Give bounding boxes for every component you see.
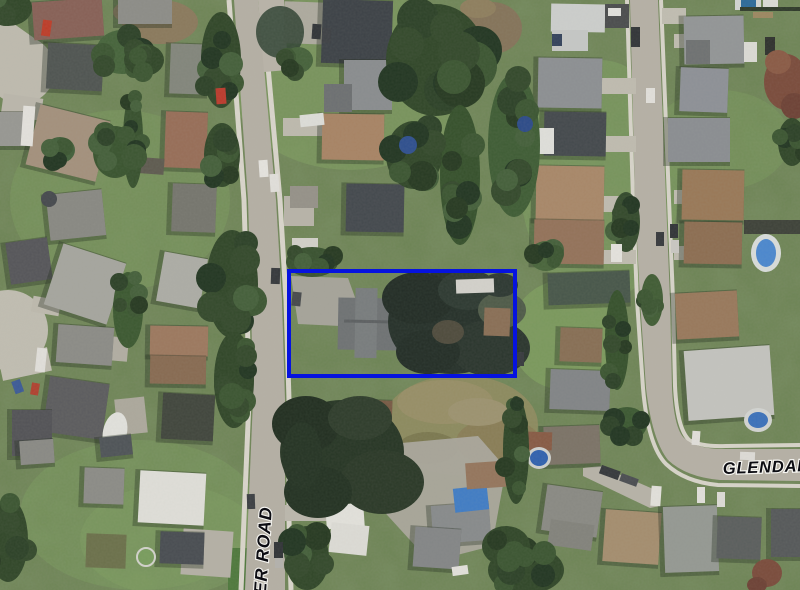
svg-text:GLENDALE: GLENDALE (723, 457, 800, 478)
